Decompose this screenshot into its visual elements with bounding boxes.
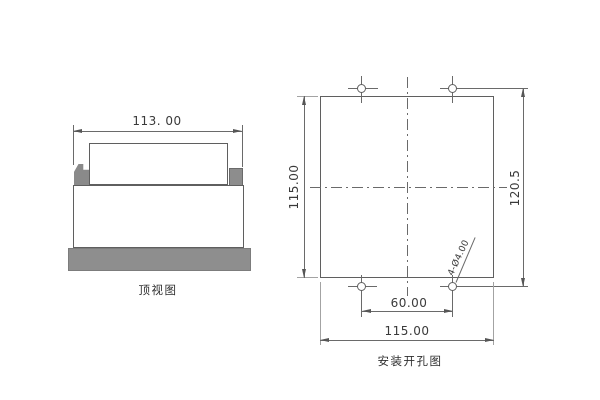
technical-drawing-canvas: 113. 00 顶视图 [0,0,600,400]
dimension-arrow-down-icon [521,278,525,287]
mounting-hole-bottom-right [448,282,457,291]
dimension-arrow-down-icon [302,269,306,278]
width-extension-line-left [320,282,321,345]
hole-column-spacing-dimension-label: 60.00 [391,296,428,310]
hole-column-spacing-dimension-line [362,311,453,312]
hole-row-spacing-dimension-label: 120.5 [508,170,522,207]
mounting-hole-bottom-left [357,282,366,291]
panel-width-dimension-label: 115.00 [385,324,430,338]
mounting-hole-top-left [357,84,366,93]
dimension-arrow-left-icon [362,309,371,313]
width-extension-line-right [493,282,494,345]
hole-row-spacing-dimension-line [523,88,524,287]
dimension-arrow-right-icon [485,338,494,342]
horizontal-centerline [310,187,507,188]
dimension-arrow-right-icon [444,309,453,313]
dimension-arrow-left-icon [320,338,329,342]
dimension-arrow-up-icon [302,96,306,105]
height-extension-line-top [297,96,318,97]
dimension-arrow-up-icon [521,88,525,97]
panel-height-dimension-label: 115.00 [287,165,301,210]
mounting-view-caption: 安装开孔图 [378,353,443,369]
panel-height-dimension-line [304,96,305,278]
panel-width-dimension-line [320,340,494,341]
height-extension-line-bottom [297,277,318,278]
mounting-hole-top-right [448,84,457,93]
mounting-hole-view: 115.00 120.5 60.00 115.00 4-Ø4.00 安装开孔图 [0,0,600,400]
